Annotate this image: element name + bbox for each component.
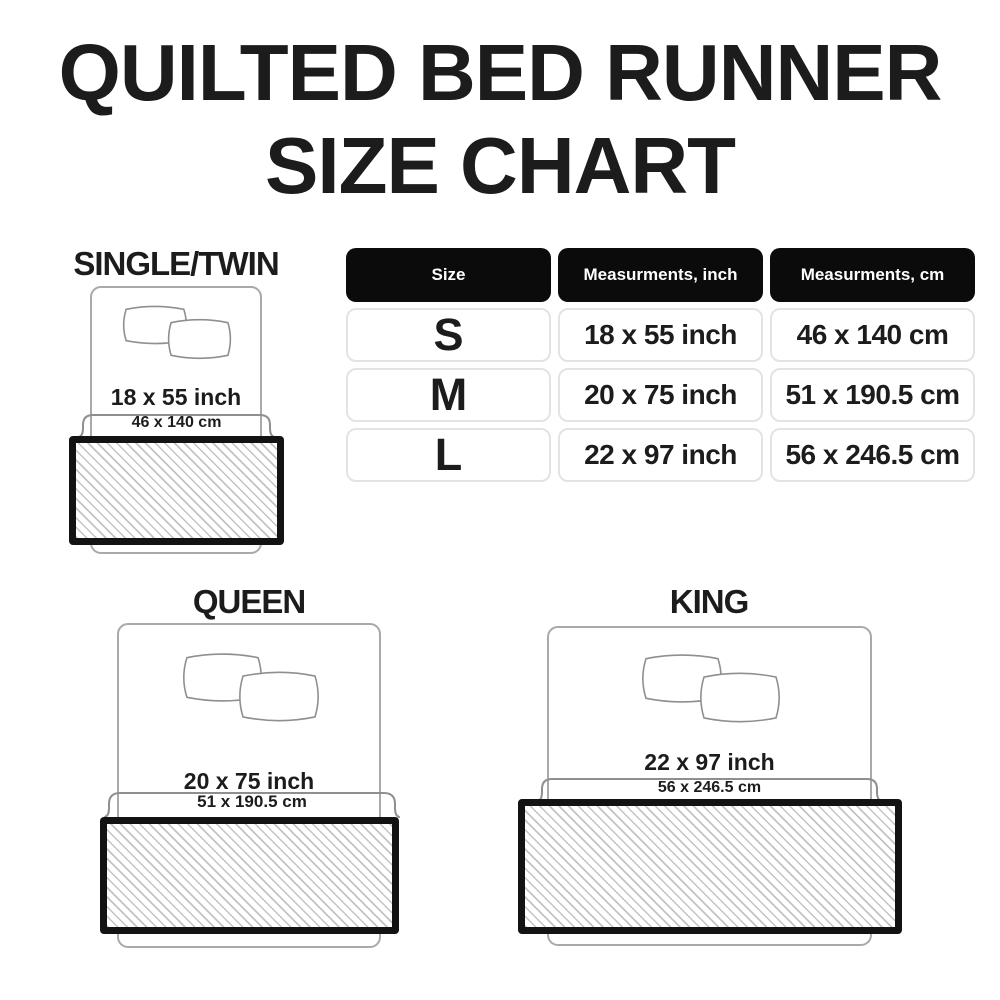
table-cell-size-l: L	[346, 428, 551, 482]
page-title-line2: SIZE CHART	[0, 119, 1000, 212]
diagram-label-king: KING	[594, 583, 824, 621]
page-title: QUILTED BED RUNNER SIZE CHART	[0, 26, 1000, 212]
page-title-line1: QUILTED BED RUNNER	[0, 26, 1000, 119]
table-header-inch: Measurments, inch	[558, 248, 763, 302]
bed-runner-single-twin	[69, 436, 284, 545]
pillow-icon	[234, 664, 324, 729]
inch-measurement-king: 22 x 97 inch	[549, 749, 870, 776]
table-cell-cm-s: 46 x 140 cm	[770, 308, 975, 362]
inch-measurement-single-twin: 18 x 55 inch	[92, 384, 260, 411]
pillow-icon	[164, 313, 235, 365]
table-cell-inch-l: 22 x 97 inch	[558, 428, 763, 482]
infographic-canvas: QUILTED BED RUNNER SIZE CHART Size Measu…	[0, 0, 1000, 1000]
table-cell-cm-l: 56 x 246.5 cm	[770, 428, 975, 482]
pillow-icon	[695, 665, 785, 730]
bed-runner-queen	[100, 817, 399, 934]
cm-measurement-queen: 51 x 190.5 cm	[104, 792, 400, 812]
size-table: Size Measurments, inch Measurments, cm S…	[346, 248, 975, 482]
table-cell-inch-s: 18 x 55 inch	[558, 308, 763, 362]
table-cell-size-s: S	[346, 308, 551, 362]
table-header-size: Size	[346, 248, 551, 302]
diagram-label-queen: QUEEN	[134, 583, 364, 621]
table-cell-inch-m: 20 x 75 inch	[558, 368, 763, 422]
diagram-label-single-twin: SINGLE/TWIN	[51, 245, 301, 283]
cm-measurement-single-twin: 46 x 140 cm	[78, 414, 275, 432]
cm-measurement-king: 56 x 246.5 cm	[537, 779, 882, 797]
bed-runner-king	[518, 799, 902, 934]
table-cell-size-m: M	[346, 368, 551, 422]
table-cell-cm-m: 51 x 190.5 cm	[770, 368, 975, 422]
table-header-cm: Measurments, cm	[770, 248, 975, 302]
